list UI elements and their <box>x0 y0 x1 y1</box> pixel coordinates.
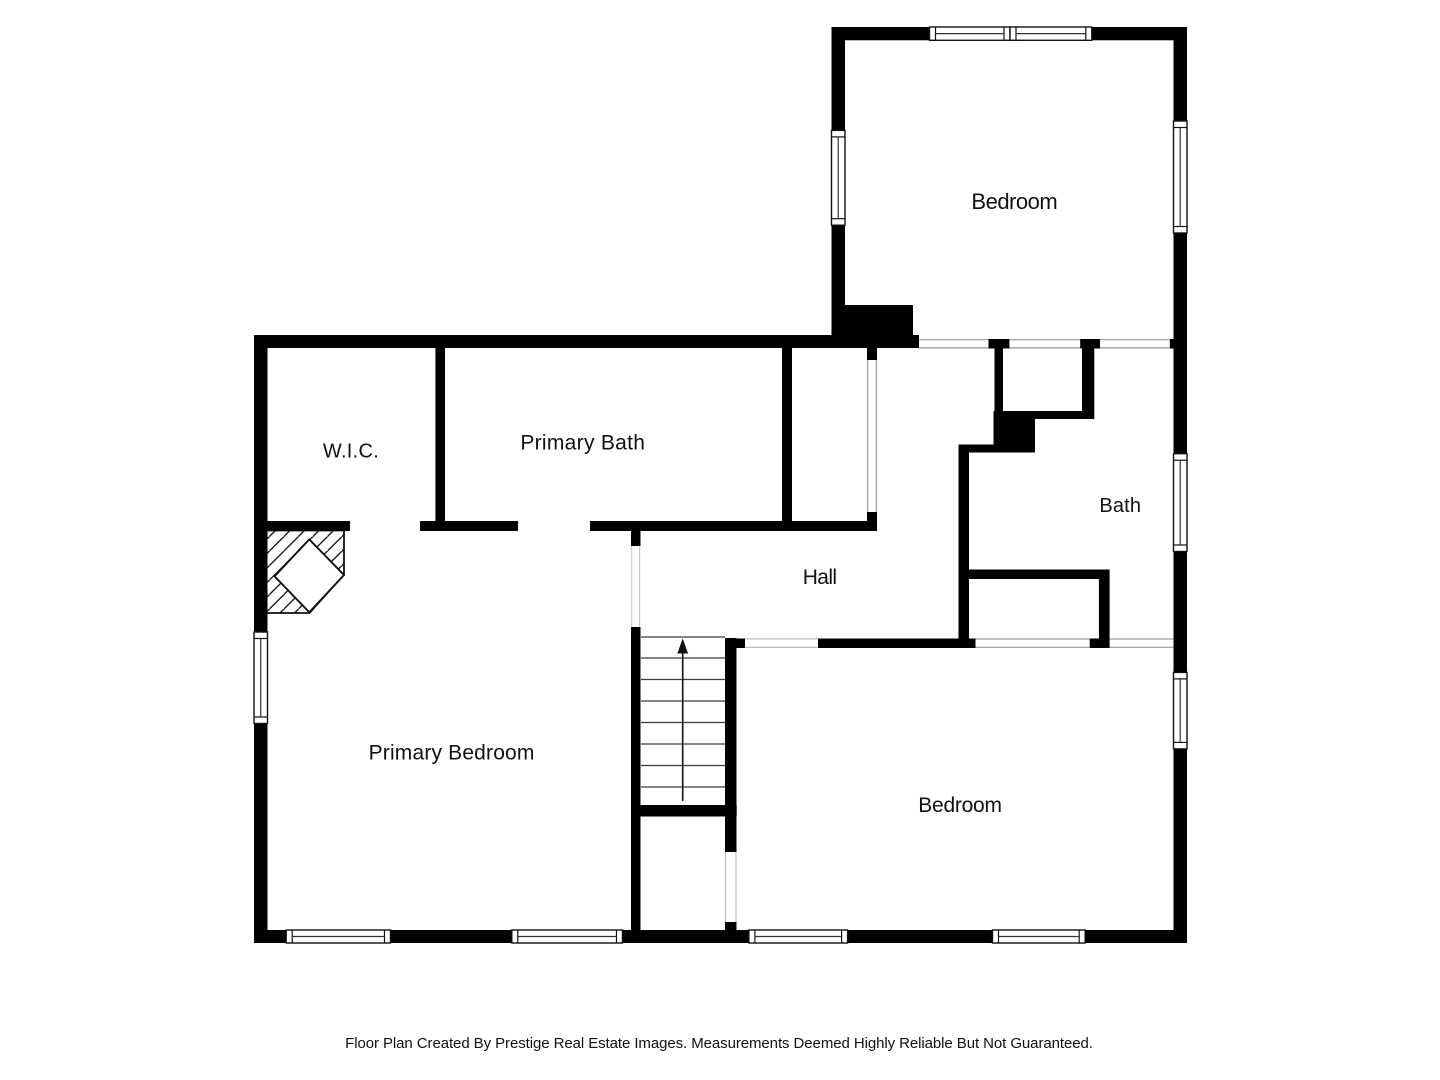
svg-text:Primary Bedroom: Primary Bedroom <box>369 742 535 765</box>
svg-text:Bath: Bath <box>1099 495 1141 517</box>
svg-text:Bedroom: Bedroom <box>918 794 1001 817</box>
svg-text:W.I.C.: W.I.C. <box>323 440 379 462</box>
svg-text:Primary Bath: Primary Bath <box>520 432 645 455</box>
svg-text:Hall: Hall <box>803 566 837 589</box>
svg-text:Bedroom: Bedroom <box>971 189 1057 214</box>
svg-text:Floor Plan Created By Prestige: Floor Plan Created By Prestige Real Esta… <box>345 1035 1093 1052</box>
